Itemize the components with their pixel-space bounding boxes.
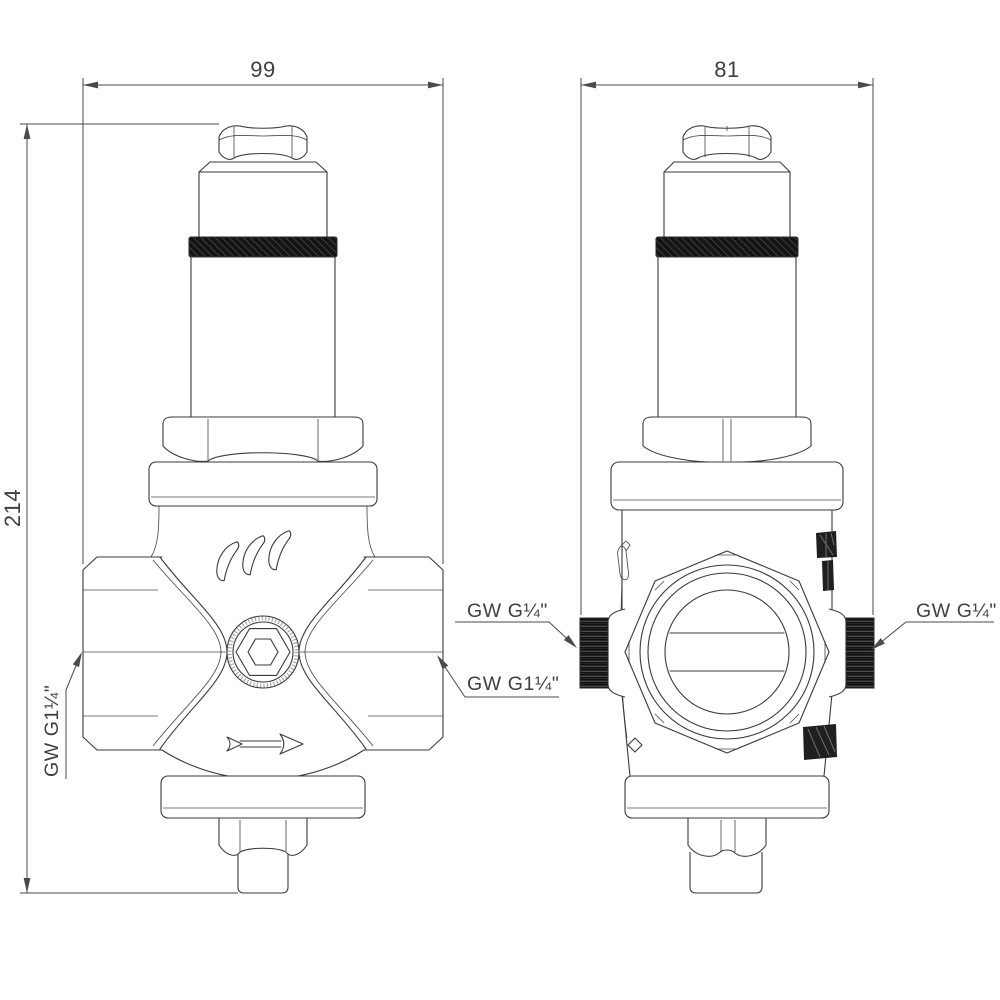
side-port-left-thread-label: GW G¼" — [467, 600, 548, 622]
cast-mark-lower — [803, 724, 837, 760]
front-spring-housing — [191, 257, 335, 424]
front-view — [83, 126, 443, 893]
front-cap-shoulder — [199, 162, 327, 172]
dim-side-width-value: 81 — [714, 57, 739, 82]
front-upper-flange — [149, 462, 377, 506]
side-knurl-band — [656, 237, 798, 257]
gauge-port-hex-plug — [227, 616, 299, 688]
front-adjust-cap-hex — [219, 126, 307, 160]
front-body — [83, 506, 443, 776]
cast-mark-middle — [822, 560, 834, 591]
dim-height-value: 214 — [0, 489, 25, 527]
label-front-outlet: GW G1¼" — [434, 653, 559, 697]
label-side-port-left: GW G¼" — [455, 600, 579, 650]
side-cap-shoulder — [664, 162, 790, 172]
side-view — [580, 126, 874, 893]
side-adjust-cap-hex — [683, 126, 771, 160]
side-port-right-knurl — [846, 618, 874, 688]
side-upper-flange — [611, 462, 843, 510]
flow-direction-arrow-icon — [227, 734, 303, 754]
side-bottom-flange — [625, 776, 829, 818]
technical-drawing-page: 99 81 214 GW G1¼" GW G1¼" GW G¼" GW G¼" — [0, 0, 1000, 1000]
label-side-port-right: GW G¼" — [869, 600, 997, 653]
water-drops-icon — [216, 529, 291, 582]
side-port-right — [829, 609, 874, 697]
cast-mark-upper — [816, 531, 837, 558]
pressure-reducing-valve-drawing: 99 81 214 GW G1¼" GW G1¼" GW G¼" GW G¼" — [0, 0, 1000, 1000]
union-nut-octagon — [625, 551, 829, 753]
side-bottom-plug — [690, 852, 762, 893]
front-bonnet-hex — [163, 417, 363, 461]
side-port-right-thread-label: GW G¼" — [916, 600, 997, 622]
side-port-left-knurl — [580, 618, 608, 688]
side-port-left — [580, 609, 625, 697]
cast-tab-detail — [618, 541, 630, 580]
front-bottom-flange — [161, 776, 365, 818]
front-outlet-thread-label: GW G1¼" — [467, 673, 559, 695]
front-bottom-plug — [238, 852, 288, 893]
front-bottom-hex-nut — [219, 818, 307, 855]
side-upper-cylinder — [664, 172, 790, 238]
cast-diamond-detail — [628, 738, 642, 752]
dim-front-width-value: 99 — [250, 57, 275, 82]
side-body — [580, 510, 874, 776]
side-bottom-hex-nut — [688, 818, 766, 856]
front-upper-cylinder — [199, 172, 327, 238]
side-bonnet-hex — [643, 417, 811, 462]
front-knurl-band — [189, 237, 337, 257]
front-inlet-thread-label: GW G1¼" — [41, 685, 63, 777]
label-front-inlet: GW G1¼" — [41, 651, 85, 779]
side-spring-housing — [658, 257, 796, 424]
